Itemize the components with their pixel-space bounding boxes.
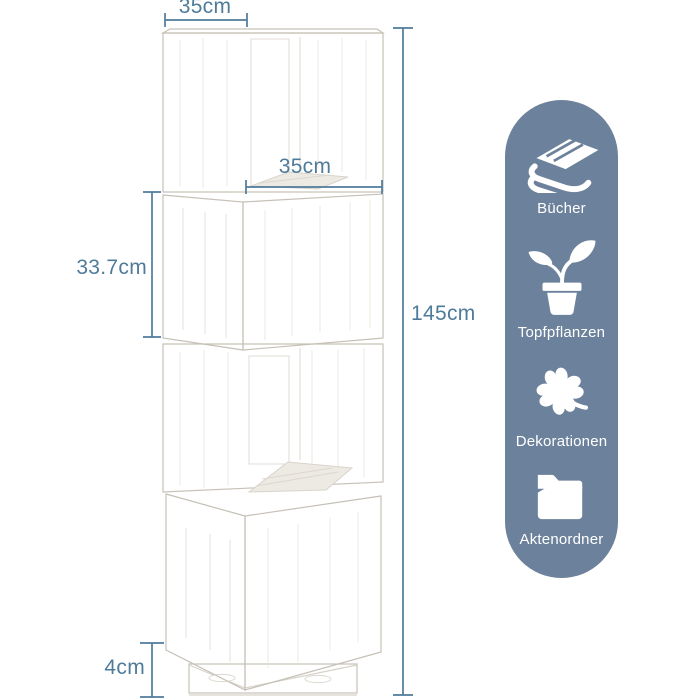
feature-label: Topfpflanzen <box>518 324 605 341</box>
dim-base-height-label: 4cm <box>65 657 145 679</box>
folder-icon <box>532 470 590 524</box>
features-panel: Bücher Topfpflanzen <box>505 100 618 578</box>
dim-top-width-label: 35cm <box>155 0 255 18</box>
product-dimension-diagram: 35cm 35cm 33.7cm 145cm 4cm Bücher <box>0 0 700 700</box>
feature-clover: Dekorationen <box>516 362 608 450</box>
feature-books: Bücher <box>522 127 602 217</box>
cube-third <box>163 344 383 492</box>
dim-opening-width-label: 35cm <box>255 156 355 178</box>
potted-plant-icon <box>523 237 601 317</box>
dim-total-height-line <box>393 28 413 695</box>
cube-bottom <box>166 494 381 690</box>
dim-cube-height-label: 33.7cm <box>57 257 147 279</box>
feature-label: Aktenordner <box>520 531 604 548</box>
clover-icon <box>531 362 593 426</box>
dim-total-height-label: 145cm <box>411 303 491 325</box>
feature-folder: Aktenordner <box>520 470 604 548</box>
feature-potted-plant: Topfpflanzen <box>518 237 605 341</box>
feature-label: Bücher <box>537 200 586 217</box>
swivel-base-plate <box>189 664 357 695</box>
books-icon <box>522 127 602 193</box>
feature-label: Dekorationen <box>516 433 608 450</box>
cube-second <box>163 194 383 350</box>
